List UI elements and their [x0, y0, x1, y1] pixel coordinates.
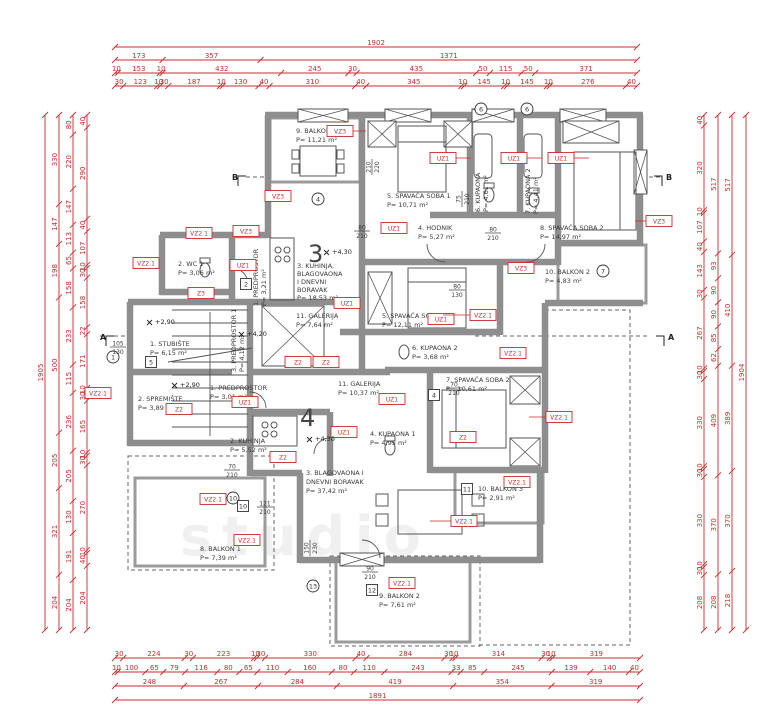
svg-text:+2,90: +2,90 — [180, 381, 200, 389]
svg-text:P= 18,53 m²: P= 18,53 m² — [297, 294, 338, 302]
svg-text:150: 150 — [304, 542, 311, 554]
svg-text:90: 90 — [366, 566, 374, 573]
svg-text:153: 153 — [132, 65, 145, 73]
svg-text:50: 50 — [478, 65, 487, 73]
wall-tag-uz1: UZ1 — [548, 153, 589, 164]
svg-text:409: 409 — [710, 414, 718, 427]
svg-text:VZ2.1: VZ2.1 — [455, 519, 473, 526]
svg-text:P= 7,39 m²: P= 7,39 m² — [200, 554, 237, 562]
dim-left-2: 330147198500205321204 — [51, 112, 62, 633]
svg-text:158: 158 — [65, 281, 73, 294]
svg-text:1905: 1905 — [37, 364, 45, 382]
svg-text:370: 370 — [710, 518, 718, 531]
svg-text:143: 143 — [696, 264, 704, 277]
dim-bottom-2: 1010065791168065110160801102433385245139… — [112, 664, 643, 675]
svg-text:I DNEVNI: I DNEVNI — [297, 278, 326, 286]
opening-size: 80210 — [485, 227, 501, 243]
svg-text:VZ2.1: VZ2.1 — [508, 480, 526, 487]
opening-size: 105130 — [110, 341, 126, 357]
opening-size: 70210 — [224, 464, 240, 480]
svg-text:245: 245 — [511, 664, 524, 672]
svg-text:Z3: Z3 — [197, 291, 205, 298]
svg-text:40: 40 — [630, 664, 639, 672]
svg-text:110: 110 — [363, 664, 376, 672]
svg-text:VZ2.1: VZ2.1 — [190, 231, 208, 238]
wall-tag-vz21: VZ2.1 — [133, 258, 159, 269]
svg-text:VZ3: VZ3 — [272, 194, 284, 201]
elevation-marker: +2,90 — [172, 381, 200, 389]
svg-text:+2,90: +2,90 — [155, 318, 175, 326]
wall-tag-vz21: VZ2.1 — [500, 348, 526, 359]
room-soba1-a3: 5. SPAVAĆA SOBA 1P= 10,71 m² — [387, 191, 451, 209]
svg-text:UZ1: UZ1 — [555, 156, 567, 163]
section-marker-a-right: A — [656, 333, 675, 346]
svg-text:P= 4,61 m²: P= 4,61 m² — [482, 175, 490, 212]
svg-text:UZ1: UZ1 — [435, 317, 447, 324]
svg-text:210: 210 — [226, 472, 238, 479]
svg-text:VZ2.1: VZ2.1 — [137, 261, 155, 268]
elevation-marker: +4,20 — [239, 330, 267, 338]
wall-tag-z2: Z2 — [166, 404, 192, 415]
svg-text:65: 65 — [244, 664, 253, 672]
svg-text:P= 12,11 m²: P= 12,11 m² — [382, 321, 423, 329]
room-balkon2-a4: 9. BALKON 2P= 7,61 m² — [379, 592, 420, 609]
svg-text:107: 107 — [696, 220, 704, 233]
svg-text:230: 230 — [312, 542, 319, 554]
svg-text:6: 6 — [479, 106, 483, 114]
svg-text:2: 2 — [244, 281, 248, 289]
svg-text:VZ3: VZ3 — [334, 129, 346, 136]
svg-text:123: 123 — [134, 78, 147, 86]
svg-text:224: 224 — [147, 650, 161, 658]
wall-tag-uz1: UZ1 — [501, 153, 542, 164]
room-stubiste: 1. STUBIŠTEP= 6,15 m² — [150, 339, 190, 357]
svg-text:6. KUPAONA: 6. KUPAONA — [474, 172, 482, 212]
svg-text:2. KUHINJA: 2. KUHINJA — [230, 437, 266, 445]
svg-text:B: B — [232, 173, 238, 182]
svg-text:173: 173 — [132, 52, 145, 60]
wall-tag-vz3: VZ3 — [233, 226, 259, 237]
svg-text:13: 13 — [309, 583, 317, 591]
wall-tag-z2: Z2 — [285, 357, 311, 368]
room-balkon1-a4: 8. BALKON 1P= 7,39 m² — [200, 545, 241, 562]
position-marker-box: 4 — [429, 390, 440, 401]
svg-text:330: 330 — [696, 514, 704, 527]
svg-text:80: 80 — [489, 227, 497, 234]
svg-text:VZ2.1: VZ2.1 — [204, 497, 222, 504]
wall-tag-vz21: VZ2.1 — [504, 477, 530, 488]
svg-text:208: 208 — [696, 596, 704, 609]
dim-right-1: 4032010107401433026710303301030330103020… — [696, 112, 707, 633]
dim-left-1: 1905 — [37, 112, 48, 633]
svg-text:320: 320 — [696, 161, 704, 174]
svg-text:P= 6,15 m²: P= 6,15 m² — [150, 349, 187, 357]
svg-text:UZ1: UZ1 — [237, 263, 249, 270]
svg-text:105: 105 — [112, 341, 124, 348]
svg-text:VZ2.1: VZ2.1 — [89, 391, 107, 398]
svg-text:210: 210 — [356, 233, 368, 240]
svg-text:40: 40 — [79, 117, 87, 126]
svg-text:40: 40 — [696, 242, 704, 251]
wall-tag-uz1: UZ1 — [381, 223, 407, 234]
dim-right-3: 517410389370218 — [724, 112, 735, 633]
svg-text:310: 310 — [306, 78, 319, 86]
svg-text:270: 270 — [79, 501, 87, 514]
svg-text:345: 345 — [407, 78, 420, 86]
svg-text:165: 165 — [79, 420, 87, 433]
svg-text:11: 11 — [463, 486, 471, 494]
svg-text:65: 65 — [150, 664, 159, 672]
svg-text:147: 147 — [65, 200, 73, 213]
svg-text:P= 4,83 m²: P= 4,83 m² — [545, 277, 582, 285]
opening-size: 80210 — [354, 225, 370, 241]
svg-text:432: 432 — [215, 65, 228, 73]
dim-right-2: 5179390908562409370208 — [710, 112, 721, 633]
svg-text:5. SPAVAĆA SOBA 1: 5. SPAVAĆA SOBA 1 — [387, 191, 451, 200]
svg-text:147: 147 — [51, 217, 59, 230]
svg-text:205: 205 — [51, 454, 59, 467]
svg-text:2. SPREMIŠTE: 2. SPREMIŠTE — [138, 394, 183, 403]
position-marker-box: 5 — [146, 357, 157, 368]
svg-text:40: 40 — [357, 650, 366, 658]
svg-text:319: 319 — [590, 650, 603, 658]
section-marker-b-right: B — [654, 173, 672, 186]
svg-text:130: 130 — [451, 292, 463, 299]
svg-text:P= 14,97 m²: P= 14,97 m² — [540, 233, 581, 241]
position-marker-circle: 6 — [521, 103, 533, 115]
svg-text:4: 4 — [432, 392, 436, 400]
position-marker-circle: 6 — [475, 103, 487, 115]
svg-text:UZ1: UZ1 — [338, 430, 350, 437]
svg-text:85: 85 — [710, 333, 718, 342]
svg-text:115: 115 — [65, 372, 73, 385]
svg-text:Z2: Z2 — [322, 360, 330, 367]
svg-text:419: 419 — [388, 678, 401, 686]
svg-text:204: 204 — [51, 595, 59, 609]
room-kupaona-a3: 6. KUPAONAP= 4,61 m² — [474, 172, 490, 212]
svg-text:65: 65 — [65, 256, 73, 265]
svg-text:6. KUPAONA 2: 6. KUPAONA 2 — [412, 344, 458, 352]
svg-text:80: 80 — [224, 664, 233, 672]
svg-text:210: 210 — [366, 161, 373, 173]
svg-text:P= 10,37 m²: P= 10,37 m² — [338, 389, 379, 397]
svg-text:80: 80 — [453, 284, 461, 291]
svg-text:30: 30 — [696, 566, 704, 575]
svg-text:4. KUPAONA 1: 4. KUPAONA 1 — [370, 430, 416, 438]
svg-text:30: 30 — [160, 78, 169, 86]
svg-text:145: 145 — [478, 78, 491, 86]
position-marker-circle: 7 — [597, 265, 609, 277]
wall-tag-uz1: UZ1 — [379, 394, 405, 405]
dim-bottom-4: 1891 — [112, 692, 643, 703]
svg-text:220: 220 — [65, 155, 73, 168]
svg-text:198: 198 — [51, 264, 59, 277]
svg-text:113: 113 — [65, 232, 73, 245]
svg-text:30: 30 — [79, 268, 87, 277]
svg-text:500: 500 — [51, 358, 59, 371]
wall-tag-vz3: VZ3 — [265, 191, 291, 202]
svg-text:22: 22 — [79, 326, 87, 335]
svg-text:10: 10 — [239, 503, 247, 511]
svg-text:110: 110 — [266, 664, 279, 672]
svg-text:P= 7,61 m²: P= 7,61 m² — [379, 601, 416, 609]
svg-text:VZ3: VZ3 — [240, 229, 252, 236]
svg-text:284: 284 — [291, 678, 305, 686]
svg-text:435: 435 — [410, 65, 423, 73]
svg-text:319: 319 — [589, 678, 602, 686]
svg-text:79: 79 — [170, 664, 179, 672]
svg-text:UZ1: UZ1 — [437, 156, 449, 163]
svg-text:33: 33 — [452, 664, 461, 672]
svg-text:8. SPAVAĆA SOBA 2: 8. SPAVAĆA SOBA 2 — [540, 223, 604, 232]
svg-text:30: 30 — [115, 650, 124, 658]
svg-text:330: 330 — [51, 153, 59, 166]
dim-left-3: 8022014711365158233115236205130191204 — [65, 112, 76, 633]
svg-text:12: 12 — [368, 587, 376, 595]
svg-text:UZ1: UZ1 — [388, 226, 400, 233]
svg-text:121: 121 — [259, 501, 271, 508]
svg-text:30: 30 — [696, 371, 704, 380]
svg-text:UZ1: UZ1 — [341, 301, 353, 308]
svg-text:10: 10 — [229, 495, 237, 503]
svg-text:80: 80 — [338, 664, 347, 672]
svg-text:75: 75 — [456, 195, 463, 203]
svg-text:VZ2.1: VZ2.1 — [393, 581, 411, 588]
dim-left-4: 4029040107103015822171103016510302701040… — [79, 112, 90, 633]
svg-text:204: 204 — [65, 598, 73, 612]
svg-text:1. STUBIŠTE: 1. STUBIŠTE — [150, 339, 190, 348]
position-marker-box: 12 — [367, 585, 378, 596]
svg-text:40: 40 — [627, 78, 636, 86]
svg-text:VZ2.1: VZ2.1 — [238, 538, 256, 545]
opening-size: 75210 — [456, 191, 472, 207]
svg-text:210: 210 — [259, 509, 271, 516]
svg-text:A: A — [668, 333, 675, 342]
svg-text:11. GALERIJA: 11. GALERIJA — [338, 380, 381, 388]
room-hodnik-a3: 4. HODNIKP= 5,27 m² — [418, 224, 455, 241]
wall-tag-vz21: VZ2.1 — [200, 494, 226, 505]
svg-text:70: 70 — [450, 382, 458, 389]
wall-tag-z2: Z2 — [270, 452, 296, 463]
section-marker-b-left: B — [232, 173, 246, 186]
svg-text:140: 140 — [603, 664, 616, 672]
room-blagovaona-a4: 3. BLAGOVAONA IDNEVNI BORAVAK P= 37,42 m… — [306, 469, 364, 495]
svg-text:205: 205 — [65, 469, 73, 482]
room-kupaona2-a4: 6. KUPAONA 2P= 3,68 m² — [412, 344, 458, 361]
dim-right-4: 1904 — [738, 112, 749, 633]
svg-text:70: 70 — [228, 464, 236, 471]
apartment-number-3: 3 — [308, 240, 323, 268]
svg-text:130: 130 — [112, 349, 124, 356]
svg-text:P= 11,21 m²: P= 11,21 m² — [296, 136, 337, 144]
svg-text:410: 410 — [724, 304, 732, 317]
svg-text:290: 290 — [79, 167, 87, 180]
wall-tag-vz21: VZ2.1 — [389, 578, 415, 589]
svg-text:DNEVNI BORAVAK: DNEVNI BORAVAK — [306, 478, 364, 486]
room-galerija-a3: 11. GALERIJAP= 7,64 m² — [296, 312, 339, 329]
svg-text:204: 204 — [79, 591, 87, 605]
floor-plan-drawing: studio 1902 1733571371 10153104322453043… — [0, 0, 780, 724]
position-marker-circle: 13 — [307, 580, 319, 592]
svg-text:VZ2.1: VZ2.1 — [550, 415, 568, 422]
svg-text:389: 389 — [724, 412, 732, 425]
dim-bottom-3: 248267284419354319 — [112, 678, 643, 689]
svg-text:P= 4,12 m²: P= 4,12 m² — [238, 335, 246, 372]
svg-text:40: 40 — [79, 221, 87, 230]
svg-text:30: 30 — [696, 469, 704, 478]
svg-text:116: 116 — [195, 664, 209, 672]
dim-top-3: 1015310432245304355011550371 — [112, 65, 640, 76]
svg-text:4: 4 — [316, 196, 320, 204]
svg-text:P= 4,41 m²: P= 4,41 m² — [532, 177, 540, 214]
room-galerija-a4: 11. GALERIJAP= 10,37 m² — [338, 380, 381, 397]
svg-text:1891: 1891 — [369, 692, 387, 700]
svg-text:Z2: Z2 — [175, 407, 183, 414]
svg-text:171: 171 — [79, 354, 87, 367]
svg-text:90: 90 — [710, 310, 718, 319]
svg-text:UZ1: UZ1 — [239, 400, 251, 407]
svg-text:220: 220 — [374, 161, 381, 173]
svg-text:30: 30 — [79, 456, 87, 465]
svg-text:139: 139 — [564, 664, 577, 672]
svg-text:30: 30 — [348, 65, 357, 73]
room-predprostor1-a4: 3. PREDPROSTOR 1P= 4,12 m² — [230, 309, 246, 372]
svg-text:50: 50 — [524, 65, 533, 73]
svg-text:330: 330 — [696, 416, 704, 429]
svg-text:UZ1: UZ1 — [386, 397, 398, 404]
svg-text:4. HODNIK: 4. HODNIK — [418, 224, 453, 232]
svg-text:145: 145 — [520, 78, 533, 86]
svg-text:517: 517 — [710, 178, 718, 191]
svg-text:40: 40 — [356, 78, 365, 86]
apartment-number-4: 4 — [300, 404, 315, 432]
svg-text:284: 284 — [399, 650, 413, 658]
svg-text:210: 210 — [464, 193, 471, 205]
svg-text:P= 3,21 m²: P= 3,21 m² — [260, 269, 268, 306]
svg-text:80: 80 — [358, 225, 366, 232]
svg-text:7: 7 — [601, 268, 605, 276]
svg-text:1. PREDPROSTOR: 1. PREDPROSTOR — [210, 384, 268, 392]
elevation-marker: +4,30 — [324, 248, 352, 256]
svg-text:30: 30 — [115, 78, 124, 86]
svg-text:A: A — [100, 333, 107, 342]
svg-text:+4,30: +4,30 — [315, 435, 335, 443]
svg-text:7. KUPAONA 2: 7. KUPAONA 2 — [524, 168, 532, 214]
floor-plan-page: studio 1902 1733571371 10153104322453043… — [0, 0, 780, 724]
svg-text:Z2: Z2 — [459, 435, 467, 442]
svg-text:P= 3,68 m²: P= 3,68 m² — [412, 353, 449, 361]
svg-text:243: 243 — [411, 664, 424, 672]
svg-text:P= 37,42 m²: P= 37,42 m² — [306, 487, 347, 495]
svg-text:370: 370 — [724, 514, 732, 527]
svg-text:3. PREDPROSTOR 1: 3. PREDPROSTOR 1 — [230, 309, 238, 372]
opening-size: 80130 — [449, 284, 465, 300]
room-kupaona2-a3: 7. KUPAONA 2P= 4,41 m² — [524, 168, 540, 214]
svg-text:VZ2.1: VZ2.1 — [504, 351, 522, 358]
svg-text:10. BALKON 2: 10. BALKON 2 — [545, 268, 590, 276]
room-predprostor-a3: 1. PREDPROSTORP= 3,21 m² — [252, 248, 268, 306]
svg-text:354: 354 — [496, 678, 510, 686]
svg-text:130: 130 — [65, 510, 73, 523]
svg-text:314: 314 — [492, 650, 506, 658]
svg-text:9. BALKON 2: 9. BALKON 2 — [379, 592, 420, 600]
svg-text:357: 357 — [205, 52, 218, 60]
svg-text:210: 210 — [487, 235, 499, 242]
svg-text:11. GALERIJA: 11. GALERIJA — [296, 312, 339, 320]
svg-text:1371: 1371 — [440, 52, 458, 60]
wall-tag-uz1: UZ1 — [230, 260, 256, 271]
svg-text:P= 3,06 m²: P= 3,06 m² — [178, 269, 215, 277]
wall-tag-vz21: VZ2.1 — [85, 388, 111, 399]
svg-text:245: 245 — [308, 65, 321, 73]
room-balkon2-a3: 10. BALKON 2P= 4,83 m² — [545, 268, 590, 285]
svg-text:P= 5,52 m²: P= 5,52 m² — [230, 446, 267, 454]
svg-text:330: 330 — [304, 650, 317, 658]
position-marker-circle: 4 — [312, 193, 324, 205]
svg-text:267: 267 — [696, 326, 704, 339]
svg-text:P= 5,27 m²: P= 5,27 m² — [418, 233, 455, 241]
svg-text:1. PREDPROSTOR: 1. PREDPROSTOR — [252, 248, 260, 306]
dim-top-4: 3012310301871013040310403451014510145102… — [112, 78, 640, 89]
svg-text:VZ2.1: VZ2.1 — [474, 313, 492, 320]
svg-text:210: 210 — [364, 574, 376, 581]
svg-text:+4,30: +4,30 — [332, 248, 352, 256]
svg-text:6: 6 — [525, 106, 529, 114]
room-kuhinja-a3: 3. KUHINJA,BLAGOVAONA I DNEVNIBORAVAK P=… — [297, 262, 343, 302]
dim-top-1: 1902 — [112, 39, 640, 50]
svg-text:P= 10,71 m²: P= 10,71 m² — [387, 201, 428, 209]
svg-text:517: 517 — [724, 178, 732, 191]
position-marker-box: 2 — [241, 279, 252, 290]
svg-text:210: 210 — [448, 390, 460, 397]
svg-text:1902: 1902 — [367, 39, 385, 47]
svg-text:Z2: Z2 — [294, 360, 302, 367]
svg-text:187: 187 — [187, 78, 200, 86]
svg-text:208: 208 — [710, 595, 718, 608]
svg-text:223: 223 — [217, 650, 230, 658]
svg-text:107: 107 — [79, 242, 87, 255]
wall-tag-z2: Z2 — [313, 357, 339, 368]
wall-tag-uz1: UZ1 — [430, 153, 471, 164]
wall-tag-z3: Z3 — [188, 288, 214, 299]
svg-text:158: 158 — [79, 296, 87, 309]
wall-tag-vz21: VZ2.1 — [430, 516, 477, 527]
opening-size: 210220 — [366, 159, 382, 175]
wall-tag-vz21: VZ2.1 — [529, 412, 572, 423]
wall-tag-uz1: UZ1 — [232, 397, 258, 408]
svg-text:233: 233 — [65, 329, 73, 342]
wall-tag-vz21: VZ2.1 — [234, 535, 260, 546]
svg-text:40: 40 — [79, 555, 87, 564]
svg-text:P= 7,64 m²: P= 7,64 m² — [296, 321, 333, 329]
svg-text:371: 371 — [579, 65, 592, 73]
svg-text:B: B — [666, 173, 672, 182]
svg-text:267: 267 — [214, 678, 227, 686]
svg-text:100: 100 — [125, 664, 138, 672]
room-kupaona1-a4: 4. KUPAONA 1P= 4,95 m² — [370, 430, 416, 447]
svg-text:VZ3: VZ3 — [653, 219, 665, 226]
svg-text:80: 80 — [65, 120, 73, 129]
svg-text:8. BALKON 1: 8. BALKON 1 — [200, 545, 241, 553]
svg-text:85: 85 — [468, 664, 477, 672]
svg-text:321: 321 — [51, 525, 59, 538]
dim-bottom-1: 302243022310303304028430103143010319 — [112, 650, 643, 661]
elevation-marker: +4,30 — [307, 435, 335, 443]
svg-text:VZ3: VZ3 — [515, 266, 527, 273]
svg-text:218: 218 — [724, 594, 732, 607]
room-soba2-a3: 8. SPAVAĆA SOBA 2P= 14,97 m² — [540, 223, 604, 241]
wall-tag-z2: Z2 — [450, 432, 476, 443]
